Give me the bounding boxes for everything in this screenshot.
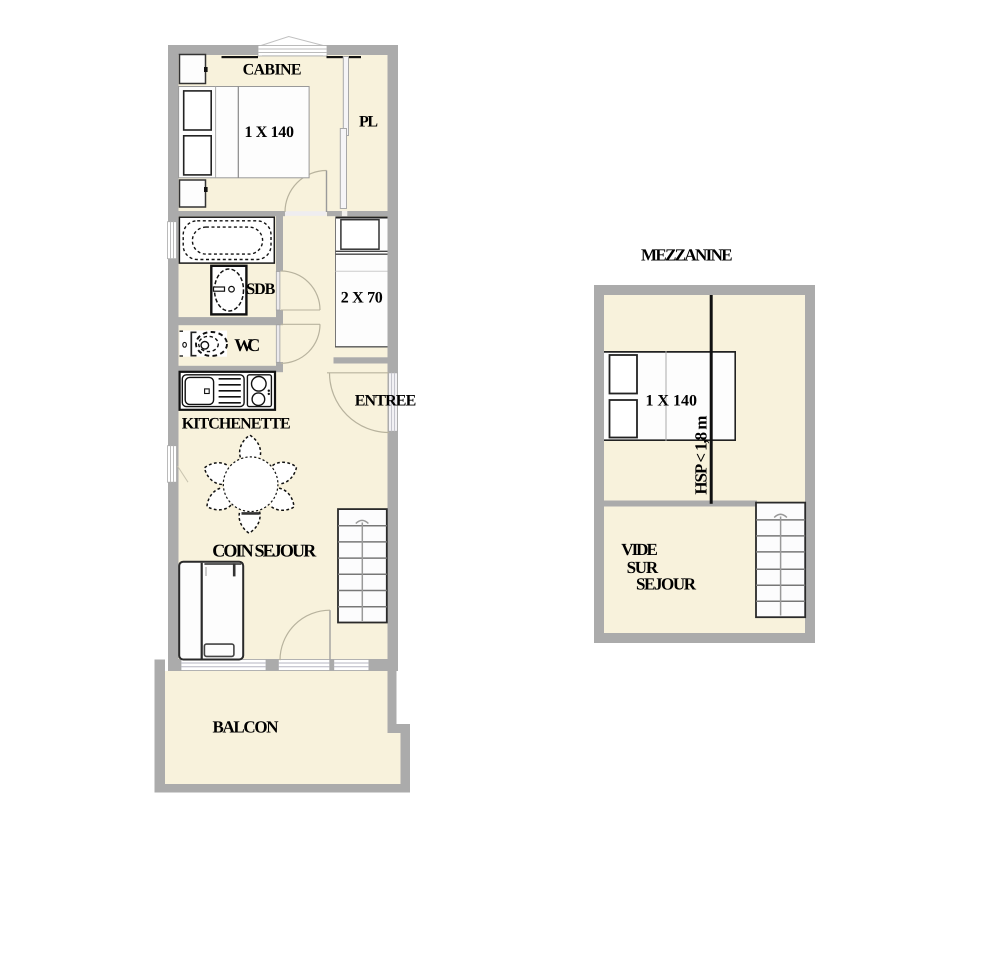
svg-text:SEJOUR: SEJOUR bbox=[636, 574, 697, 593]
svg-text:MEZZANINE: MEZZANINE bbox=[641, 246, 733, 265]
svg-text:PL: PL bbox=[359, 114, 378, 131]
svg-text:ENTREE: ENTREE bbox=[355, 393, 417, 410]
svg-text:SDB: SDB bbox=[246, 281, 275, 298]
svg-text:VIDE: VIDE bbox=[621, 540, 658, 559]
svg-text:WC: WC bbox=[234, 335, 260, 355]
svg-text:KITCHENETTE: KITCHENETTE bbox=[182, 415, 291, 432]
svg-text:COIN SEJOUR: COIN SEJOUR bbox=[212, 540, 317, 560]
svg-text:BALCON: BALCON bbox=[213, 718, 280, 737]
svg-text:1 X 140: 1 X 140 bbox=[244, 124, 294, 141]
svg-text:1 X 140: 1 X 140 bbox=[645, 392, 697, 409]
svg-text:CABINE: CABINE bbox=[243, 61, 302, 78]
svg-text:2 X 70: 2 X 70 bbox=[341, 289, 383, 306]
svg-text:HSP < 1,8 m: HSP < 1,8 m bbox=[692, 416, 711, 495]
